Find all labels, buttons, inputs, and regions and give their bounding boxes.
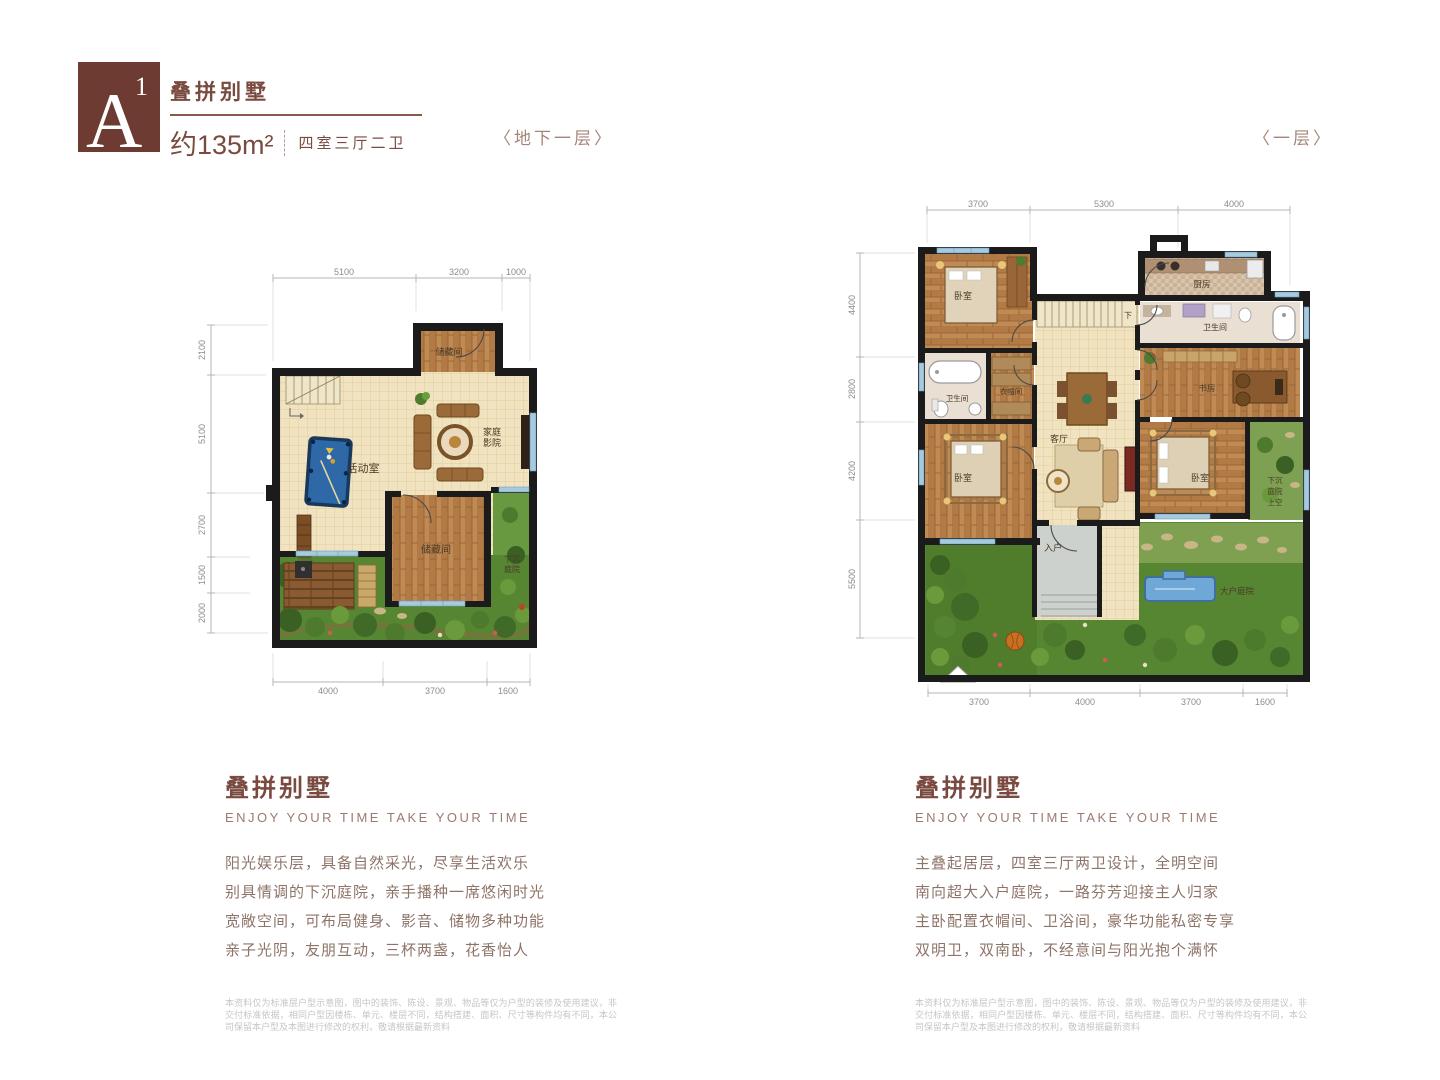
area-label: 约135m²	[170, 123, 274, 162]
dim-label: 1600	[498, 686, 518, 695]
dim-label: 5500	[847, 569, 857, 589]
room-label-bath-ne: 卫生间	[1203, 322, 1227, 332]
basement-description: 叠拼别墅 ENJOY YOUR TIME TAKE YOUR TIME 阳光娱乐…	[225, 768, 627, 1042]
dim-label: 3700	[1181, 697, 1201, 707]
unit-badge-superscript: 1	[135, 72, 148, 102]
page-title: 叠拼别墅	[170, 76, 422, 106]
room-label-sunken-1: 下沉	[1268, 476, 1284, 485]
dim-label: 5100	[197, 424, 207, 444]
basement-dims-left: 2100 5100 2700 1500 2000	[197, 325, 268, 633]
section-line: 南向超大入户庭院，一路芬芳迎接主人归家	[915, 878, 1317, 907]
dim-label: 2100	[197, 340, 207, 360]
basement-floor-plan: 5100 3200 1000 2100 5100 2700 1500 2000 …	[190, 265, 610, 695]
dim-label: 3700	[969, 697, 989, 707]
section-title: 叠拼别墅	[225, 768, 627, 803]
room-label-garden: 大户庭院	[1220, 586, 1255, 596]
dim-label: 4000	[1224, 199, 1244, 209]
dim-label: 3700	[425, 686, 445, 695]
basement-caption: 〈地下一层〉	[494, 124, 614, 149]
dim-label: 2700	[197, 515, 207, 535]
room-label-sunken-2: 庭院	[504, 564, 520, 574]
section-title: 叠拼别墅	[915, 768, 1317, 803]
room-label-activity: 活动室	[347, 461, 380, 475]
room-config-label: 四室三厅二卫	[299, 132, 407, 153]
dim-label: 1500	[197, 565, 207, 585]
room-label-theater-2: 影院	[483, 437, 501, 448]
dim-label: 2800	[847, 379, 857, 399]
section-line: 别具情调的下沉庭院，亲手播种一席悠闲时光	[225, 878, 627, 907]
room-label-closet: 衣帽间	[1000, 386, 1023, 396]
first-dims-left: 4400 2800 4200 5500	[847, 253, 915, 638]
header-block: 叠拼别墅 约135m² 四室三厅二卫	[170, 76, 422, 162]
section-body: 阳光娱乐层，具备自然采光，尽享生活欢乐 别具情调的下沉庭院，亲手播种一席悠闲时光…	[225, 849, 627, 965]
section-body: 主叠起居层，四室三厅两卫设计，全明空间 南向超大入户庭院，一路芬芳迎接主人归家 …	[915, 849, 1317, 965]
dim-label: 4200	[847, 461, 857, 481]
spec-row: 约135m² 四室三厅二卫	[170, 123, 422, 162]
disclaimer-text: 本资料仅为标准层户型示意图，图中的装饰、陈设、景观、物品等仅为户型的装修及使用建…	[225, 997, 617, 1033]
room-label-storage-bottom: 储藏间	[421, 543, 451, 556]
room-label-storage-top: 储藏间	[435, 346, 462, 357]
section-line: 宽敞空间，可布局健身、影音、储物多种功能	[225, 907, 627, 936]
dim-label: 4000	[1075, 697, 1095, 707]
dim-label: 3200	[449, 267, 469, 277]
dim-label: 1000	[506, 267, 526, 277]
room-label-theater-1: 家庭	[483, 426, 501, 437]
room-label-entry: 入户	[1044, 542, 1062, 553]
dim-label: 4400	[847, 295, 857, 315]
title-underline	[170, 114, 422, 116]
first-dims-bottom: 3700 4000 3700 1600	[928, 684, 1287, 707]
first-floor-plan: 3700 5300 4000 4400 2800 4200 5500 3700 …	[845, 195, 1320, 720]
first-floor-caption: 〈一层〉	[1253, 124, 1333, 149]
section-subtitle: ENJOY YOUR TIME TAKE YOUR TIME	[915, 810, 1317, 825]
room-label-sunken-1: 下沉	[504, 555, 520, 564]
dim-label: 4000	[318, 686, 338, 695]
dim-label: 3700	[968, 199, 988, 209]
section-line: 阳光娱乐层，具备自然采光，尽享生活欢乐	[225, 849, 627, 878]
room-label-kitchen: 厨房	[1193, 279, 1210, 289]
section-line: 双明卫，双南卧，不经意间与阳光抱个满怀	[915, 936, 1317, 965]
dim-label: 2000	[197, 603, 207, 623]
dim-label: 1600	[1255, 697, 1275, 707]
spec-divider	[284, 130, 285, 156]
room-label-bedroom-se: 卧室	[1191, 472, 1209, 483]
dim-label: 5300	[1094, 199, 1114, 209]
room-label-sunken-3: 上空	[1268, 497, 1283, 507]
room-label-bedroom-sw: 卧室	[954, 472, 972, 483]
section-line: 主卧配置衣帽间、卫浴间，豪华功能私密专享	[915, 907, 1317, 936]
room-label-living: 客厅	[1050, 433, 1068, 444]
section-line: 亲子光阴，友朋互动，三杯两盏，花香怡人	[225, 936, 627, 965]
basement-dims-bottom: 4000 3700 1600	[273, 653, 530, 695]
pool-table	[306, 438, 352, 507]
floorplan-brochure-page: A 1 叠拼别墅 约135m² 四室三厅二卫 〈地下一层〉 〈一层〉	[0, 0, 1440, 1080]
room-label-bath-w: 卫生间	[946, 393, 969, 403]
section-line: 主叠起居层，四室三厅两卫设计，全明空间	[915, 849, 1317, 878]
stairs-down-label: 下	[1124, 311, 1132, 320]
unit-badge: A 1	[78, 62, 160, 152]
room-label-study: 书房	[1198, 383, 1215, 393]
dim-label: 5100	[334, 267, 354, 277]
unit-badge-letter: A	[86, 76, 142, 166]
section-subtitle: ENJOY YOUR TIME TAKE YOUR TIME	[225, 810, 627, 825]
first-floor-description: 叠拼别墅 ENJOY YOUR TIME TAKE YOUR TIME 主叠起居…	[915, 768, 1317, 1042]
room-label-sunken-2: 庭院	[1268, 486, 1284, 496]
room-label-bedroom-nw: 卧室	[954, 290, 972, 301]
disclaimer-text: 本资料仅为标准层户型示意图，图中的装饰、陈设、景观、物品等仅为户型的装修及使用建…	[915, 997, 1307, 1033]
